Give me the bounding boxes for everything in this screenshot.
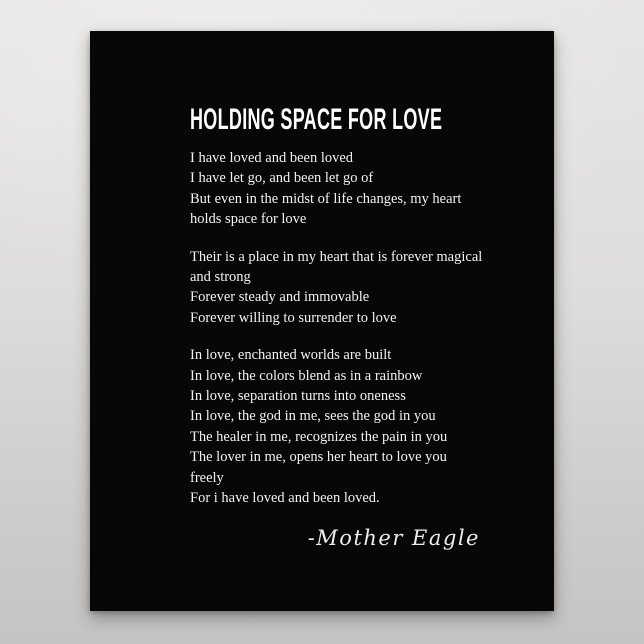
poem-line: The healer in me, recognizes the pain in… bbox=[190, 427, 480, 447]
poem-line: In love, the god in me, sees the god in … bbox=[190, 406, 480, 426]
poem-line: The lover in me, opens her heart to love… bbox=[190, 447, 480, 467]
stanza: Their is a place in my heart that is for… bbox=[190, 247, 480, 329]
stanza: I have loved and been loved I have let g… bbox=[190, 148, 480, 230]
poem-line: Their is a place in my heart that is for… bbox=[190, 247, 480, 267]
poem-line: I have loved and been loved bbox=[190, 148, 480, 168]
poem-line: I have let go, and been let go of bbox=[190, 168, 480, 188]
poem-line: and strong bbox=[190, 267, 480, 287]
stanza: In love, enchanted worlds are built In l… bbox=[190, 345, 480, 508]
poem-line: In love, enchanted worlds are built bbox=[190, 345, 480, 365]
poster: HOLDING SPACE FOR LOVE I have loved and … bbox=[90, 31, 554, 611]
poem-line: But even in the midst of life changes, m… bbox=[190, 189, 480, 209]
poem-line: freely bbox=[190, 468, 480, 488]
poem: I have loved and been loved I have let g… bbox=[190, 148, 480, 550]
poem-line: For i have loved and been loved. bbox=[190, 488, 480, 508]
poem-line: Forever steady and immovable bbox=[190, 287, 480, 307]
poem-line: In love, separation turns into oneness bbox=[190, 386, 480, 406]
poster-title: HOLDING SPACE FOR LOVE bbox=[190, 105, 364, 135]
signature: -Mother Eagle bbox=[190, 526, 480, 550]
backdrop: HOLDING SPACE FOR LOVE I have loved and … bbox=[0, 0, 644, 644]
poem-line: Forever willing to surrender to love bbox=[190, 308, 480, 328]
poem-line: holds space for love bbox=[190, 209, 480, 229]
poem-line: In love, the colors blend as in a rainbo… bbox=[190, 366, 480, 386]
